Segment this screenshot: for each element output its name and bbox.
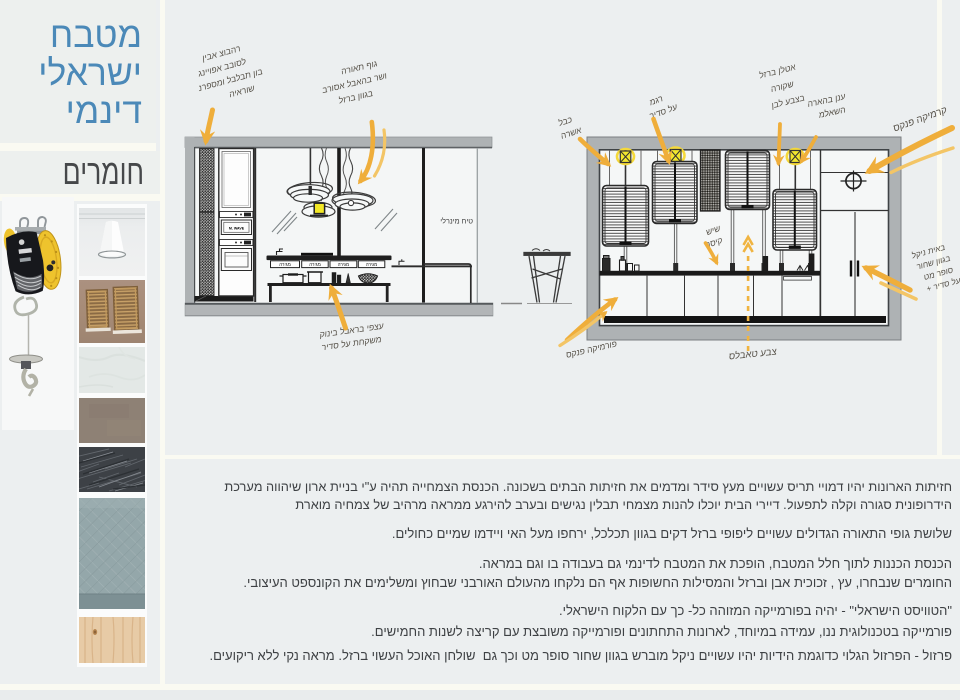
svg-text:מגירה: מגירה [309,262,321,267]
svg-text:בצבע לבן: בצבע לבן [769,92,805,110]
svg-text:כבל: כבל [557,114,574,128]
svg-text:השאלמ: השאלמ [817,104,847,120]
svg-text:בגוון ברזל: בגוון ברזל [337,88,373,106]
svg-text:שקורה: שקורה [770,79,796,95]
svg-text:מגירה: מגירה [279,262,291,267]
svg-text:קרמיקה פנקס: קרמיקה פנקס [892,105,949,135]
svg-text:פורמיקה פנקס: פורמיקה פנקס [565,338,618,359]
svg-text:טיח מינרלי: טיח מינרלי [440,217,473,226]
svg-text:צבע טאבלס: צבע טאבלס [728,345,778,362]
svg-text:אטלן ברזל: אטלן ברזל [758,62,797,81]
svg-text:מגירה: מגירה [366,262,378,267]
svg-text:שוראיה: שוראיה [228,83,256,100]
svg-text:רגמ: רגמ [647,93,665,108]
svg-text:M. WAVE: M. WAVE [229,227,245,231]
svg-text:מגירה: מגירה [338,262,350,267]
